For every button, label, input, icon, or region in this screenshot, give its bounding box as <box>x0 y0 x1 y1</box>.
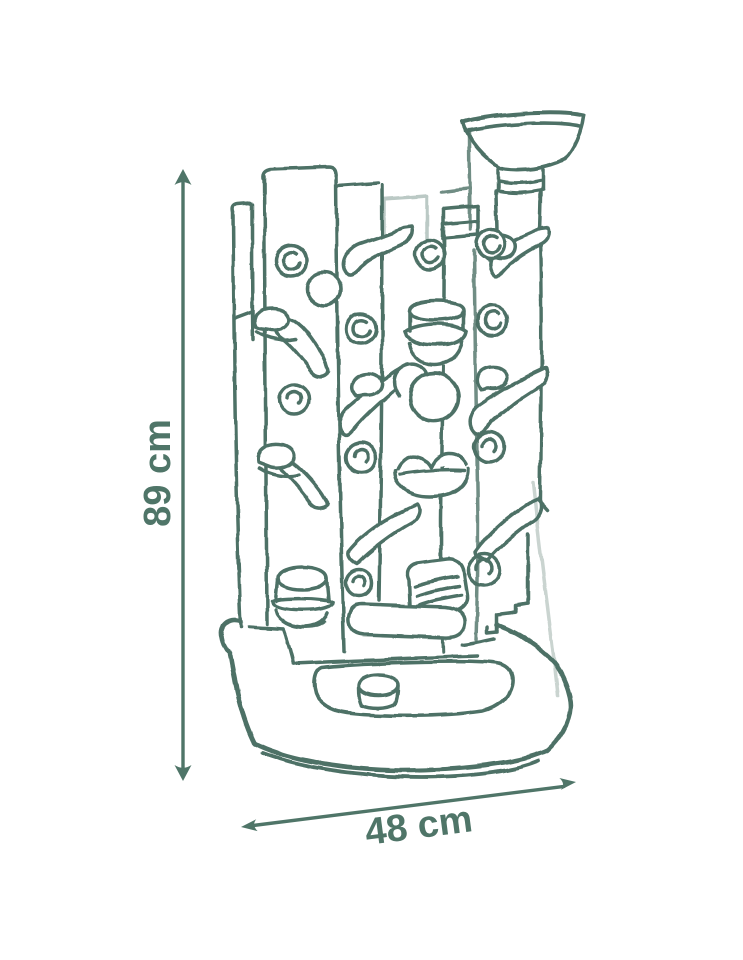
svg-text:89 cm: 89 cm <box>137 419 179 527</box>
svg-text:48 cm: 48 cm <box>363 798 475 854</box>
